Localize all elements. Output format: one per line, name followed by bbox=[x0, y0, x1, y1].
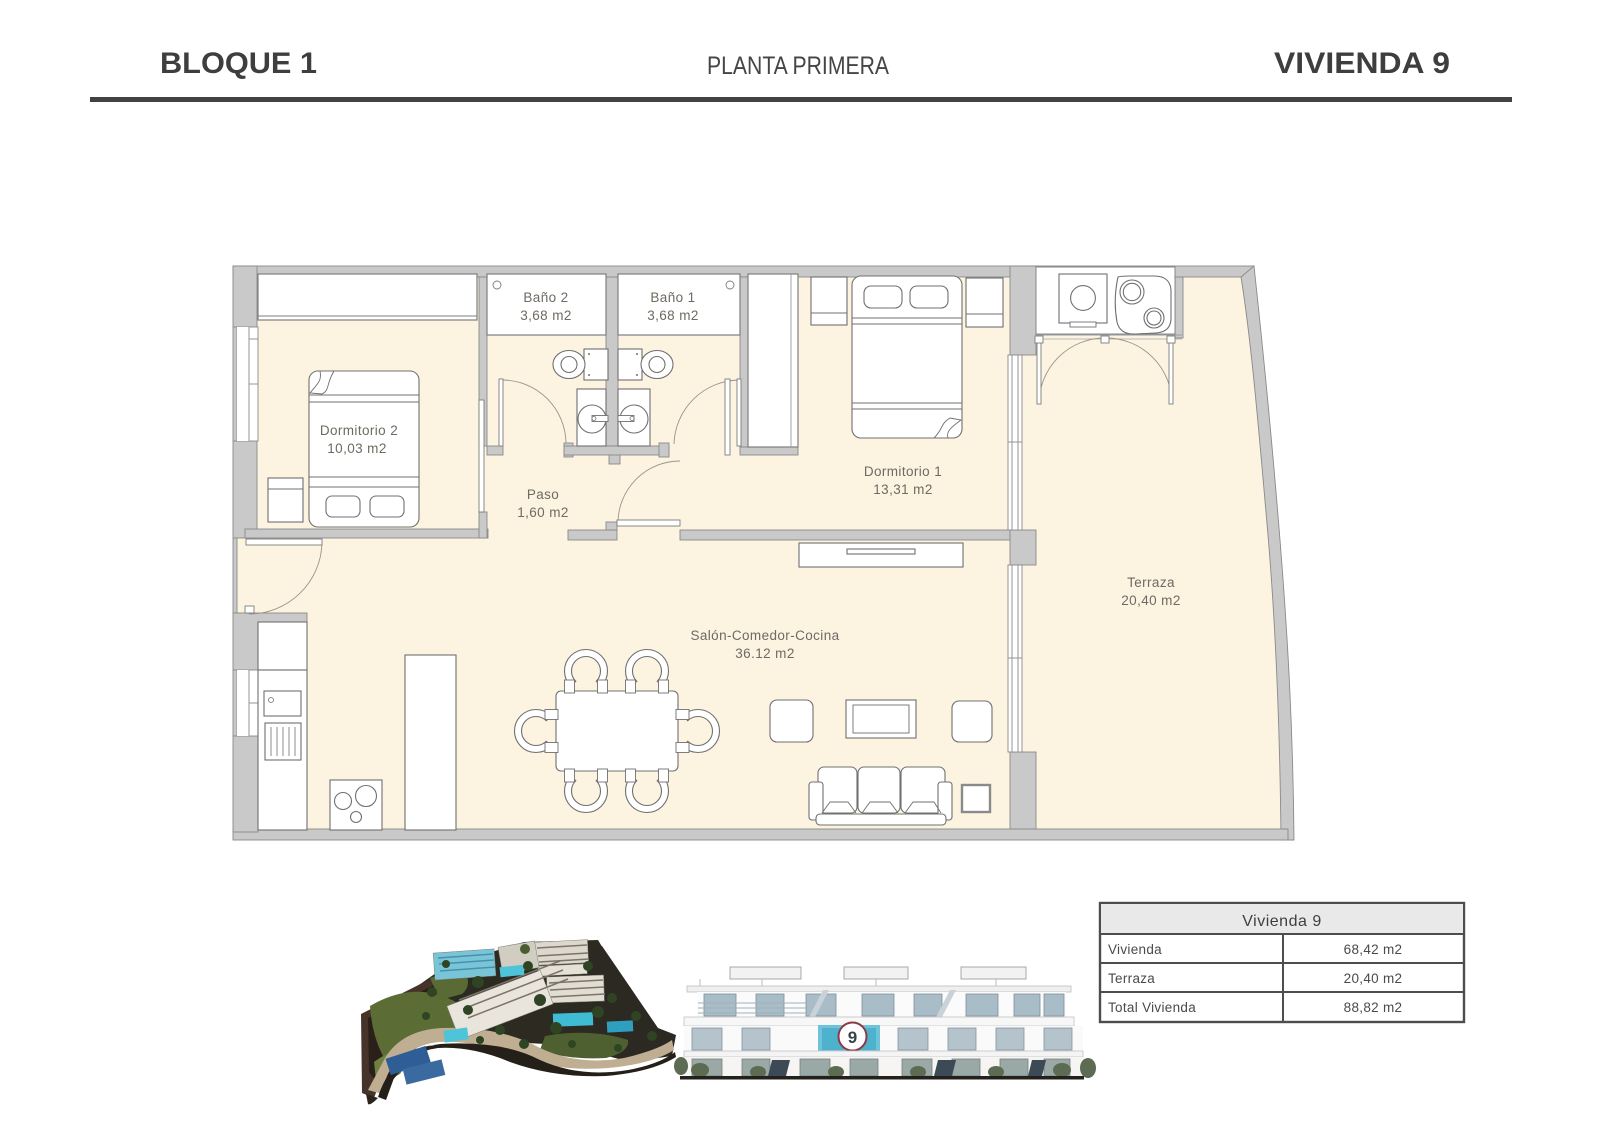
svg-text:13,31 m2: 13,31 m2 bbox=[873, 482, 933, 497]
svg-text:Paso: Paso bbox=[527, 487, 559, 502]
svg-text:BLOQUE 1: BLOQUE 1 bbox=[160, 47, 317, 80]
svg-text:VIVIENDA 9: VIVIENDA 9 bbox=[1274, 47, 1450, 80]
svg-text:Baño 1: Baño 1 bbox=[650, 290, 695, 305]
svg-text:9: 9 bbox=[848, 1028, 857, 1047]
svg-text:20,40 m2: 20,40 m2 bbox=[1121, 593, 1181, 608]
svg-text:20,40 m2: 20,40 m2 bbox=[1344, 971, 1403, 986]
svg-text:Terraza: Terraza bbox=[1127, 575, 1175, 590]
svg-text:Total Vivienda: Total Vivienda bbox=[1108, 1000, 1196, 1015]
svg-text:Vivienda 9: Vivienda 9 bbox=[1242, 913, 1321, 930]
svg-text:Baño 2: Baño 2 bbox=[523, 290, 568, 305]
svg-text:PLANTA PRIMERA: PLANTA PRIMERA bbox=[707, 52, 889, 80]
svg-text:Dormitorio 1: Dormitorio 1 bbox=[864, 464, 942, 479]
svg-text:3,68 m2: 3,68 m2 bbox=[647, 308, 699, 323]
svg-text:68,42 m2: 68,42 m2 bbox=[1344, 942, 1403, 957]
svg-text:88,82 m2: 88,82 m2 bbox=[1344, 1000, 1403, 1015]
svg-text:Salón-Comedor-Cocina: Salón-Comedor-Cocina bbox=[690, 628, 839, 643]
svg-text:10,03 m2: 10,03 m2 bbox=[327, 441, 387, 456]
svg-text:3,68 m2: 3,68 m2 bbox=[520, 308, 572, 323]
svg-text:Dormitorio 2: Dormitorio 2 bbox=[320, 423, 398, 438]
svg-text:36.12 m2: 36.12 m2 bbox=[735, 646, 795, 661]
svg-text:Vivienda: Vivienda bbox=[1108, 942, 1162, 957]
svg-text:1,60 m2: 1,60 m2 bbox=[517, 505, 569, 520]
svg-text:Terraza: Terraza bbox=[1108, 971, 1155, 986]
